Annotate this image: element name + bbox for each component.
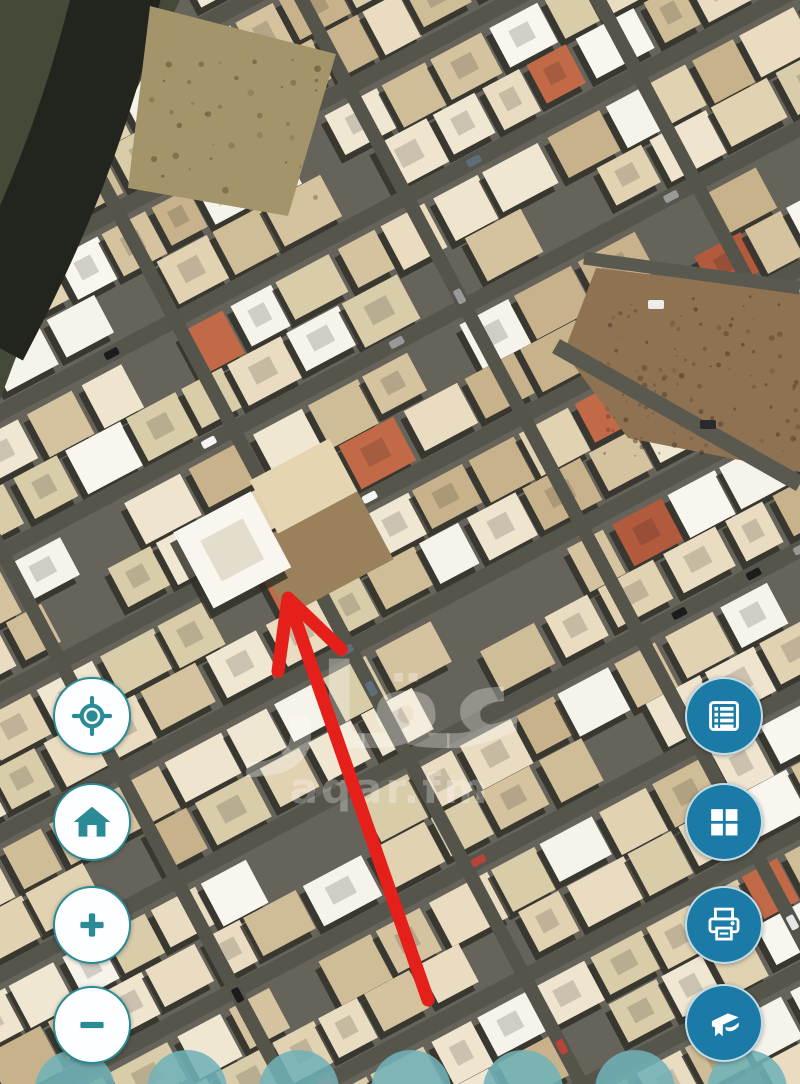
table-list-icon (702, 694, 746, 738)
guide-button[interactable] (685, 984, 763, 1062)
print-button[interactable] (685, 886, 763, 964)
minus-icon (70, 1003, 114, 1047)
map-app-screen: عقار aqar.fm (0, 0, 800, 1084)
grid-icon (702, 800, 746, 844)
grid-view-button[interactable] (685, 783, 763, 861)
zoom-out-button[interactable] (53, 986, 131, 1064)
listings-button[interactable] (685, 677, 763, 755)
locate-button[interactable] (53, 677, 131, 755)
printer-icon (702, 903, 746, 947)
home-icon (70, 800, 114, 844)
plus-icon (70, 903, 114, 947)
zoom-in-button[interactable] (53, 886, 131, 964)
home-button[interactable] (53, 783, 131, 861)
book-icon (701, 1000, 747, 1046)
crosshair-target-icon (70, 694, 114, 738)
